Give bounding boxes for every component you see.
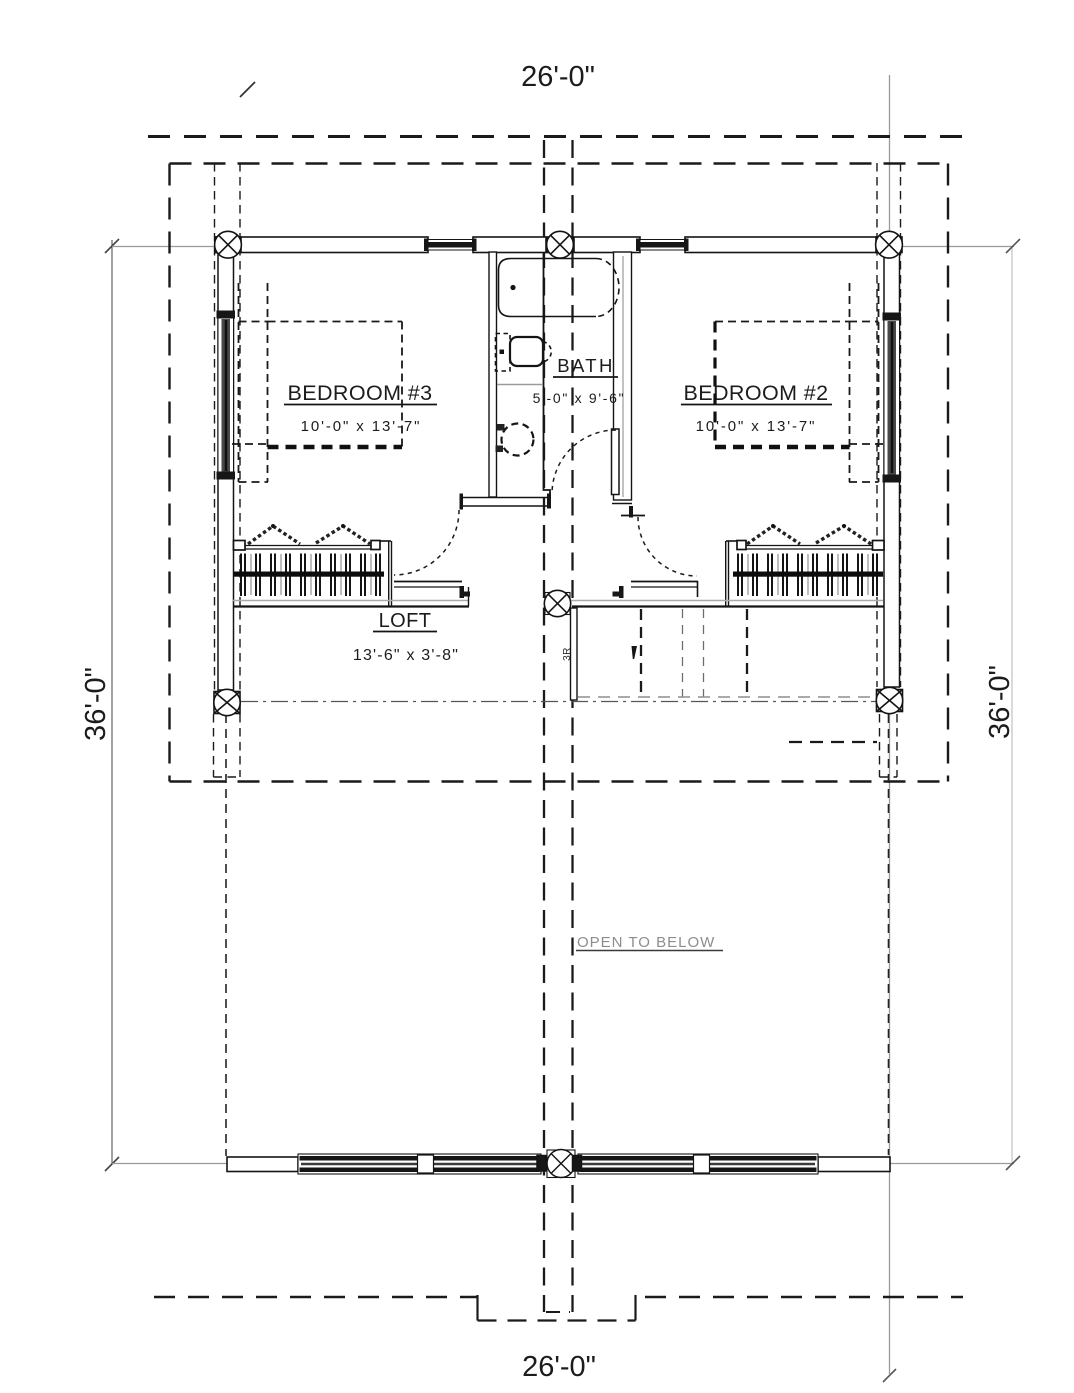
svg-text:OPEN TO BELOW: OPEN TO BELOW bbox=[577, 934, 715, 951]
svg-text:5'-0" x 9'-6": 5'-0" x 9'-6" bbox=[533, 390, 626, 406]
svg-text:BATH: BATH bbox=[557, 355, 615, 376]
svg-text:13'-6" x 3'-8": 13'-6" x 3'-8" bbox=[353, 647, 459, 664]
svg-text:26'-0": 26'-0" bbox=[521, 61, 595, 93]
svg-text:BEDROOM #3: BEDROOM #3 bbox=[288, 381, 433, 405]
svg-text:3R: 3R bbox=[562, 647, 573, 661]
svg-text:26'-0": 26'-0" bbox=[522, 1351, 596, 1383]
svg-text:36'-0": 36'-0" bbox=[80, 667, 112, 741]
svg-text:LOFT: LOFT bbox=[379, 610, 432, 632]
svg-text:10'-0" x 13'-7": 10'-0" x 13'-7" bbox=[301, 418, 422, 435]
svg-text:BEDROOM #2: BEDROOM #2 bbox=[684, 381, 829, 405]
svg-text:36'-0": 36'-0" bbox=[984, 665, 1016, 739]
